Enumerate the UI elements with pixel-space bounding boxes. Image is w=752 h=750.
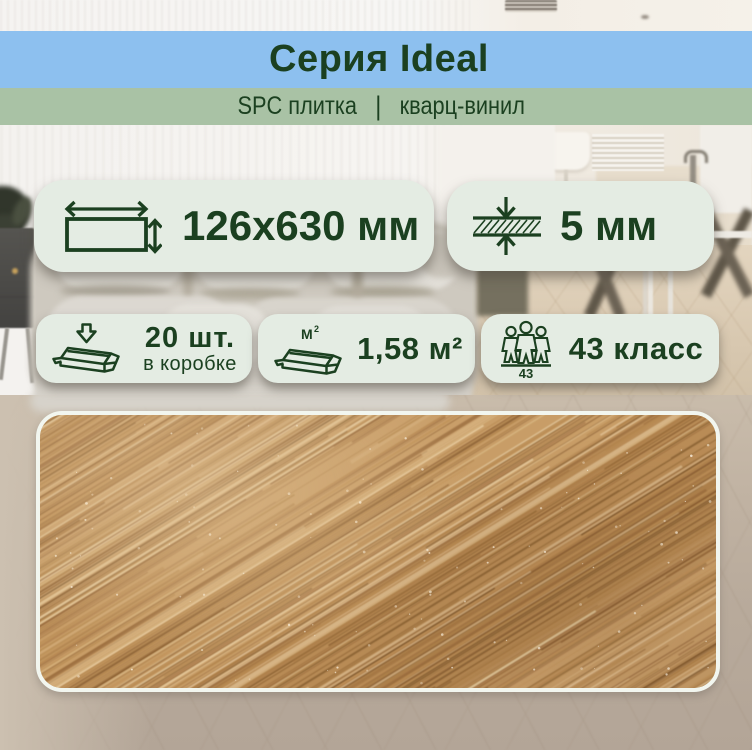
svg-text:43: 43	[519, 366, 533, 380]
svg-text:М: М	[301, 326, 313, 342]
svg-text:2: 2	[314, 324, 319, 334]
